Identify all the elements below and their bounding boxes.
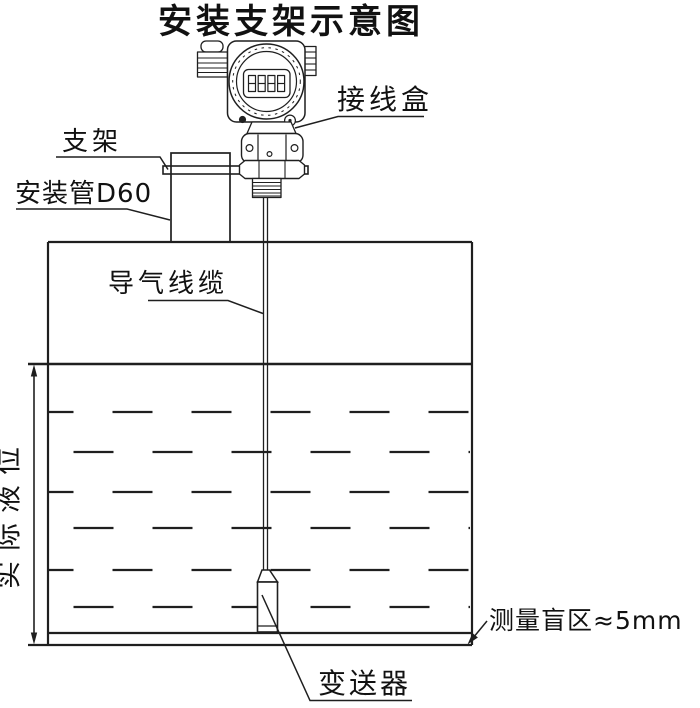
neck	[247, 122, 296, 134]
tank	[28, 242, 472, 645]
bracket-label: 支架	[62, 127, 122, 157]
transmitter-label: 变送器	[318, 667, 411, 700]
process-yoke	[242, 134, 304, 164]
leader-bracket	[56, 157, 168, 170]
hex-nut	[240, 161, 305, 179]
bolt-icon	[239, 116, 246, 123]
lcd-display	[244, 70, 291, 98]
actual-level-label: 实际液位	[0, 437, 24, 589]
air-cable-label: 导气线缆	[108, 269, 228, 299]
cable-gland-icon	[198, 41, 228, 77]
blind-zone-label: 测量盲区≈5mm	[489, 606, 683, 635]
level-dimension-arrow	[31, 365, 37, 645]
installation-diagram: 安装支架示意图	[0, 0, 700, 708]
leader-air-cable	[148, 301, 263, 314]
leader-junction-box	[295, 117, 424, 129]
guide-cable	[264, 198, 268, 571]
leader-mounting-pipe	[16, 209, 170, 220]
thread-stub	[253, 179, 282, 198]
mounting-pipe-label: 安装管D60	[15, 179, 152, 209]
page-title: 安装支架示意图	[158, 2, 424, 42]
vent-rib-icon	[305, 47, 317, 76]
junction-box-label: 接线盒	[337, 83, 433, 116]
